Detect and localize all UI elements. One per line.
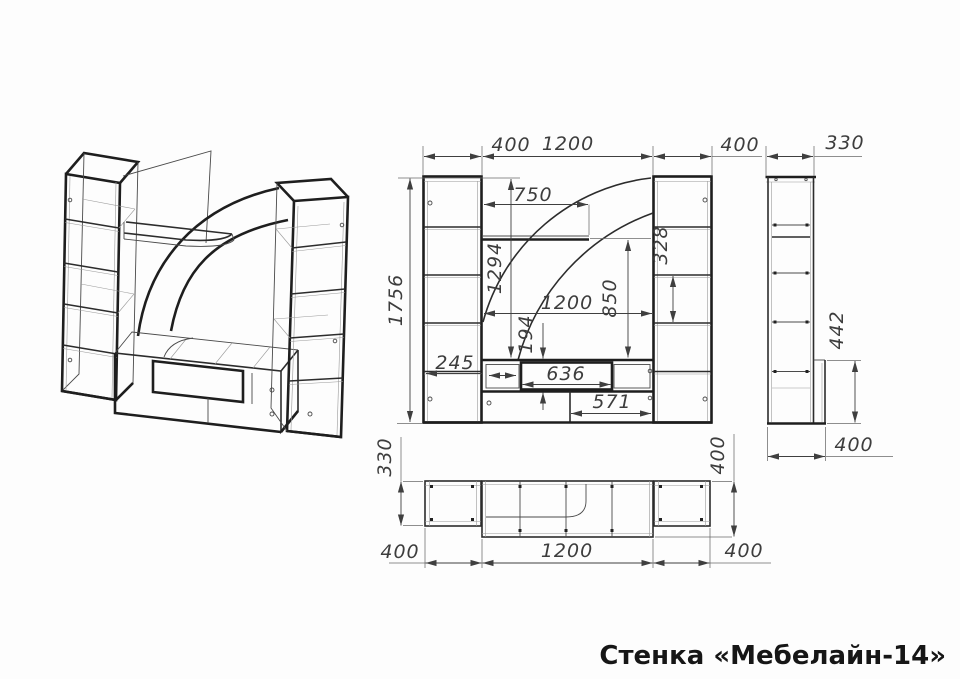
drawing-title: Стенка «Мебелайн-14» [599,641,946,671]
dim-plan-right-width: 400 [724,540,763,562]
dim-front-open-height: 1294 [484,242,506,294]
dim-plan-left-width: 400 [380,541,419,563]
front-inner-arc [518,213,653,360]
dim-front-total-height: 1756 [385,274,407,326]
drawing-sheet: 400 1200 400 330 1756 750 1294 328 850 1… [0,0,960,679]
dim-side-stand-height: 442 [826,310,848,349]
dim-front-right-width: 400 [720,134,759,156]
dim-side-depth-top: 330 [825,132,864,154]
dim-front-door-width: 245 [435,352,474,374]
dim-front-inner-width: 1200 [541,292,593,314]
dim-front-compartment-width: 571 [592,391,631,413]
technical-drawing-canvas: 400 1200 400 330 1756 750 1294 328 850 1… [0,0,960,679]
isometric-view [62,151,348,437]
dim-front-left-width: 400 [491,134,530,156]
dim-front-niche-height: 194 [515,314,537,353]
dim-front-niche-width: 636 [546,363,585,385]
plan-view [425,481,710,537]
dim-plan-center-width: 1200 [541,540,593,562]
dim-front-center-width: 1200 [542,133,594,155]
dim-front-shelf-width: 750 [513,184,552,206]
dim-side-depth-bottom: 400 [834,434,873,456]
dim-plan-right-depth: 400 [707,435,729,474]
dim-front-panel-height: 850 [599,278,621,317]
dim-front-right-gap: 328 [650,225,672,264]
dim-plan-left-depth: 330 [374,437,396,476]
side-elevation-view [766,177,827,424]
dimension-annotations: 400 1200 400 330 1756 750 1294 328 850 1… [374,132,893,568]
